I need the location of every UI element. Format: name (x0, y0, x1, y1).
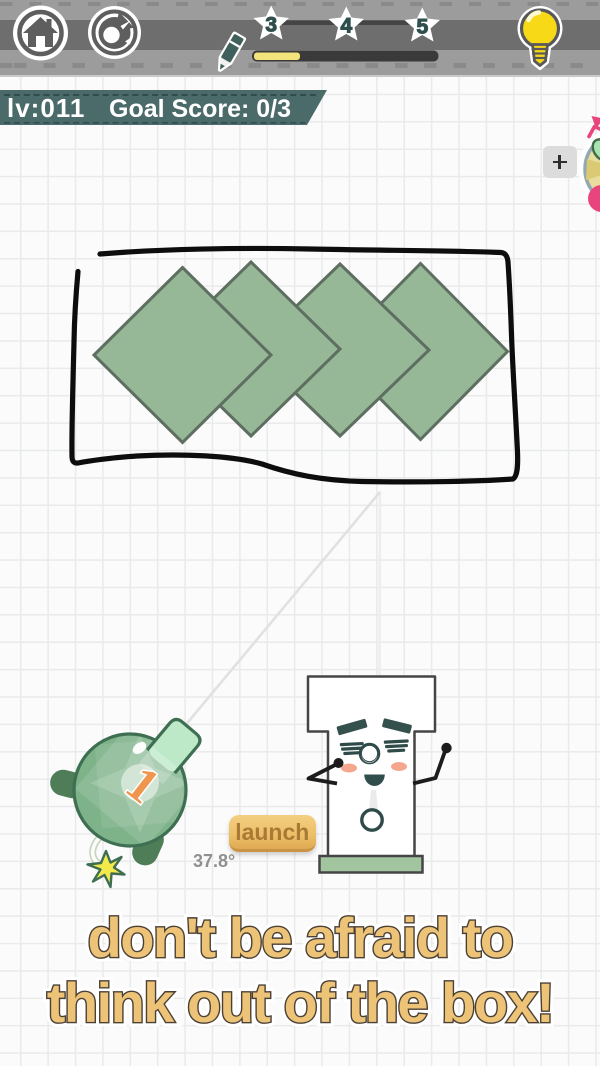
svg-text:4: 4 (340, 15, 352, 38)
svg-text:5: 5 (416, 16, 428, 39)
svg-text:3: 3 (265, 14, 277, 37)
